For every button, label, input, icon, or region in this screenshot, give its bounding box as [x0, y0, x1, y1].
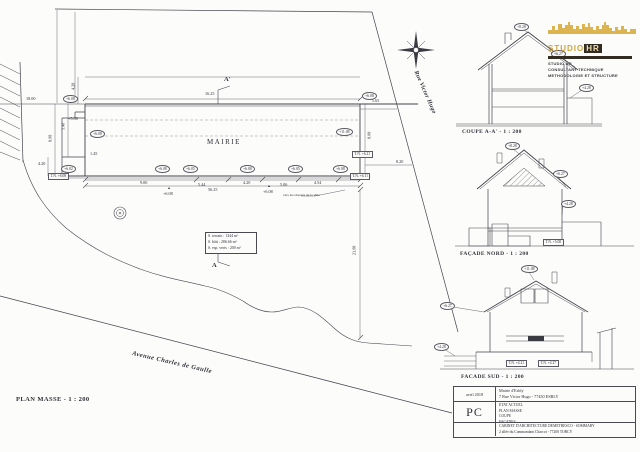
logo-studio-text: STUDIO — [548, 44, 584, 53]
logo-tagline-3: METHODOLOGIE ET STRUCTURE — [548, 73, 640, 79]
titleblock-date: avril 2018 — [454, 387, 496, 401]
logo-bar — [548, 56, 632, 59]
building-label-mairie: MAIRIE — [207, 138, 241, 146]
studio-hr-logo: STUDIOHR STUDIO HR CONSULTANT TECHNIQUE … — [548, 20, 640, 79]
facade-sud-title: FACADE SUD - 1 : 200 — [461, 374, 524, 380]
coupe-title: COUPE A-A' - 1 : 200 — [462, 129, 522, 135]
content-line-4: FACADES — [499, 420, 632, 422]
titleblock-contents: ETAT ACTUEL PLAN MASSE COUPE FACADES — [496, 402, 635, 422]
titleblock-empty-cell — [454, 423, 496, 436]
architect-address: 2 allée du Commandant Charcot - 77200 TO… — [499, 430, 632, 436]
client-address: 7 Rue Victor Hugo - 77450 ESBLY — [499, 394, 632, 400]
compass-rose — [397, 31, 435, 69]
surface-espaces-verts: S. esp. verts : 200 m² — [208, 246, 254, 252]
plan-masse-title: PLAN MASSE - 1 : 200 — [16, 396, 90, 403]
title-block: avril 2018 Mairie d'Esbly 7 Rue Victor H… — [453, 386, 636, 438]
skyline-icon — [548, 20, 636, 34]
logo-wordmark: STUDIOHR — [548, 39, 640, 55]
surface-summary-box: S. terrain : 1344 m² S. bâti : 286.66 m²… — [205, 232, 257, 254]
titleblock-client: Mairie d'Esbly 7 Rue Victor Hugo - 77450… — [496, 387, 635, 401]
facade-nord-title: FAÇADE NORD - 1 : 200 — [460, 251, 529, 257]
logo-hr-text: HR — [584, 44, 602, 53]
titleblock-doc-type: PC — [454, 402, 496, 422]
drawing-sheet: PLAN MASSE - 1 : 200 COUPE A-A' - 1 : 20… — [0, 0, 640, 452]
titleblock-architect: CABINET D'ARCHITECTURE DEMETRESCO - SOMM… — [496, 423, 635, 436]
plan-linework — [0, 0, 640, 452]
